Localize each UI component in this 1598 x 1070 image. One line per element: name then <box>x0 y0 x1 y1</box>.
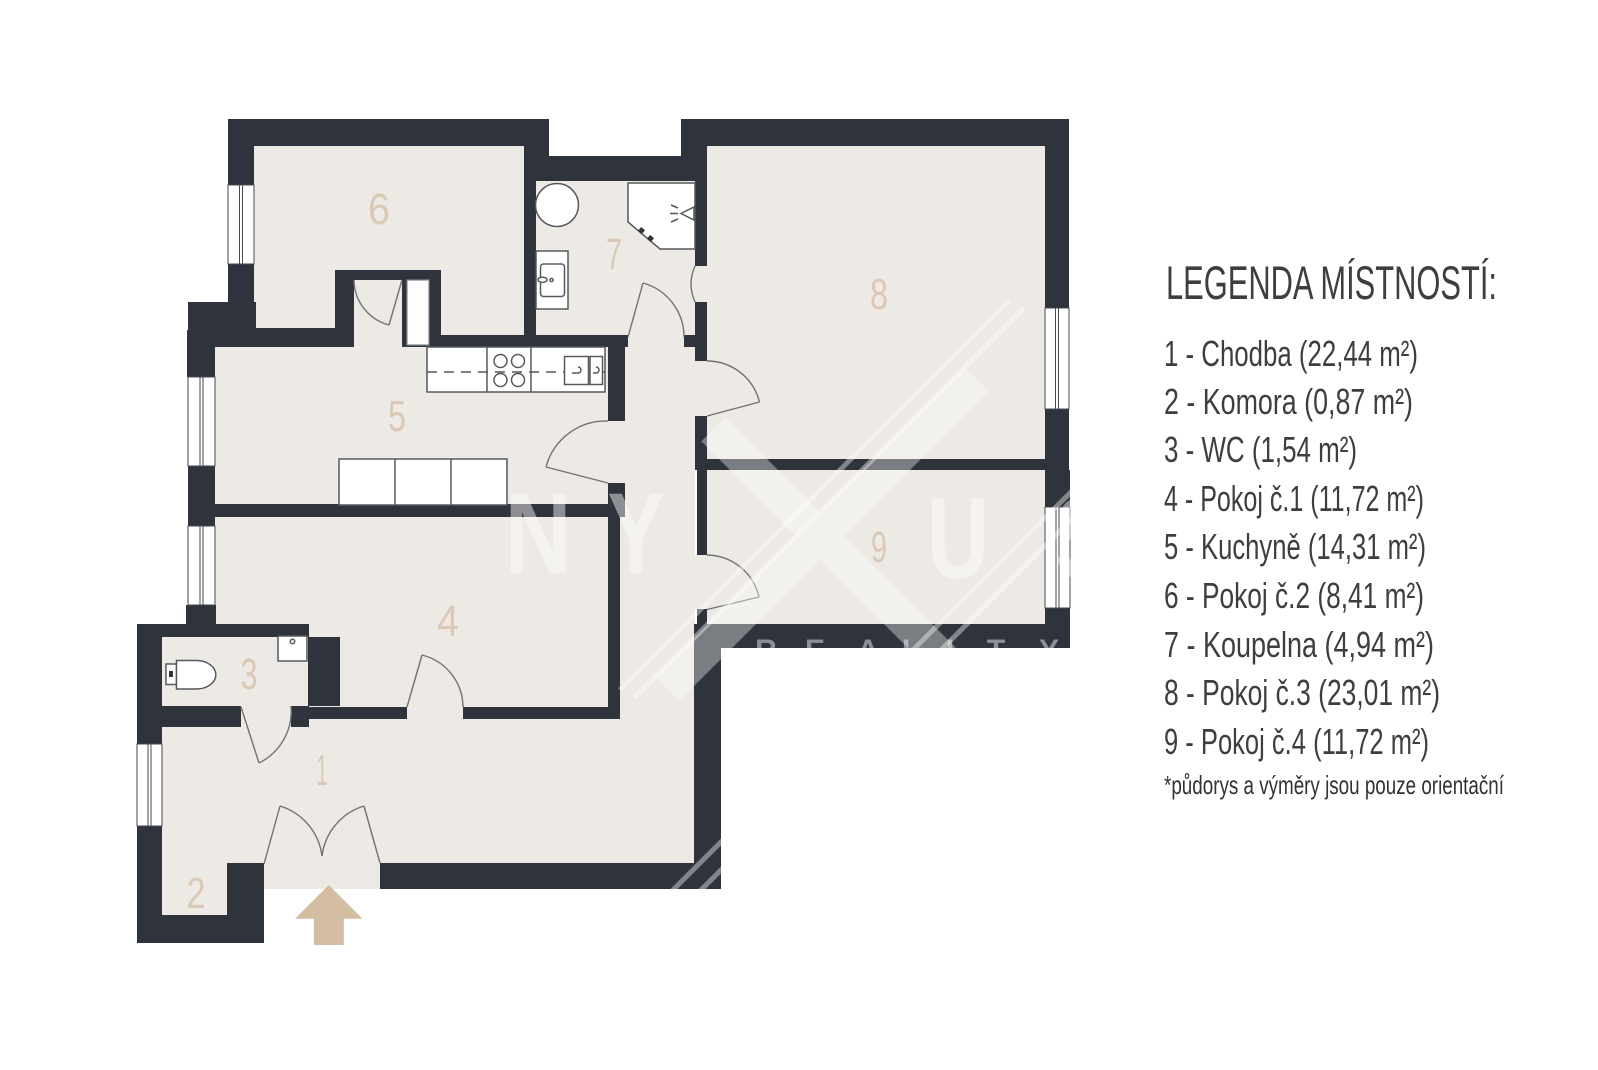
svg-text:*půdorys a výměry jsou pouze o: *půdorys a výměry jsou pouze orientační <box>1164 770 1505 800</box>
svg-text:7 - Koupelna (4,94 m²): 7 - Koupelna (4,94 m²) <box>1164 624 1434 665</box>
svg-text:S: S <box>1055 475 1109 603</box>
svg-text:Y: Y <box>608 470 665 598</box>
svg-text:1: 1 <box>317 746 328 795</box>
svg-text:A: A <box>857 634 879 667</box>
svg-text:7: 7 <box>606 230 622 279</box>
svg-text:6 - Pokoj č.2 (8,41 m²): 6 - Pokoj č.2 (8,41 m²) <box>1164 575 1424 616</box>
svg-text:LEGENDA MÍSTNOSTÍ:: LEGENDA MÍSTNOSTÍ: <box>1166 256 1497 309</box>
svg-text:9 - Pokoj č.4 (11,72 m²): 9 - Pokoj č.4 (11,72 m²) <box>1164 721 1429 762</box>
svg-text:9: 9 <box>871 523 887 572</box>
svg-text:4 - Pokoj č.1 (11,72 m²): 4 - Pokoj č.1 (11,72 m²) <box>1164 478 1424 519</box>
svg-text:4: 4 <box>437 597 459 646</box>
svg-text:8: 8 <box>870 270 888 319</box>
svg-text:1 - Chodba (22,44 m²): 1 - Chodba (22,44 m²) <box>1164 333 1418 374</box>
svg-text:2 - Komora (0,87 m²): 2 - Komora (0,87 m²) <box>1164 381 1413 422</box>
svg-text:3 - WC (1,54 m²): 3 - WC (1,54 m²) <box>1164 429 1357 470</box>
svg-text:5 - Kuchyně (14,31 m²): 5 - Kuchyně (14,31 m²) <box>1164 526 1426 567</box>
svg-text:Y: Y <box>1039 634 1059 667</box>
svg-text:N: N <box>505 470 572 598</box>
svg-text:5: 5 <box>388 392 406 441</box>
svg-text:3: 3 <box>241 650 258 699</box>
svg-text:T: T <box>987 634 1005 667</box>
svg-text:E: E <box>805 634 825 667</box>
svg-text:R: R <box>755 634 777 667</box>
svg-text:6: 6 <box>368 185 390 234</box>
svg-text:8 - Pokoj č.3 (23,01 m²): 8 - Pokoj č.3 (23,01 m²) <box>1164 672 1440 713</box>
svg-text:2: 2 <box>187 869 206 918</box>
